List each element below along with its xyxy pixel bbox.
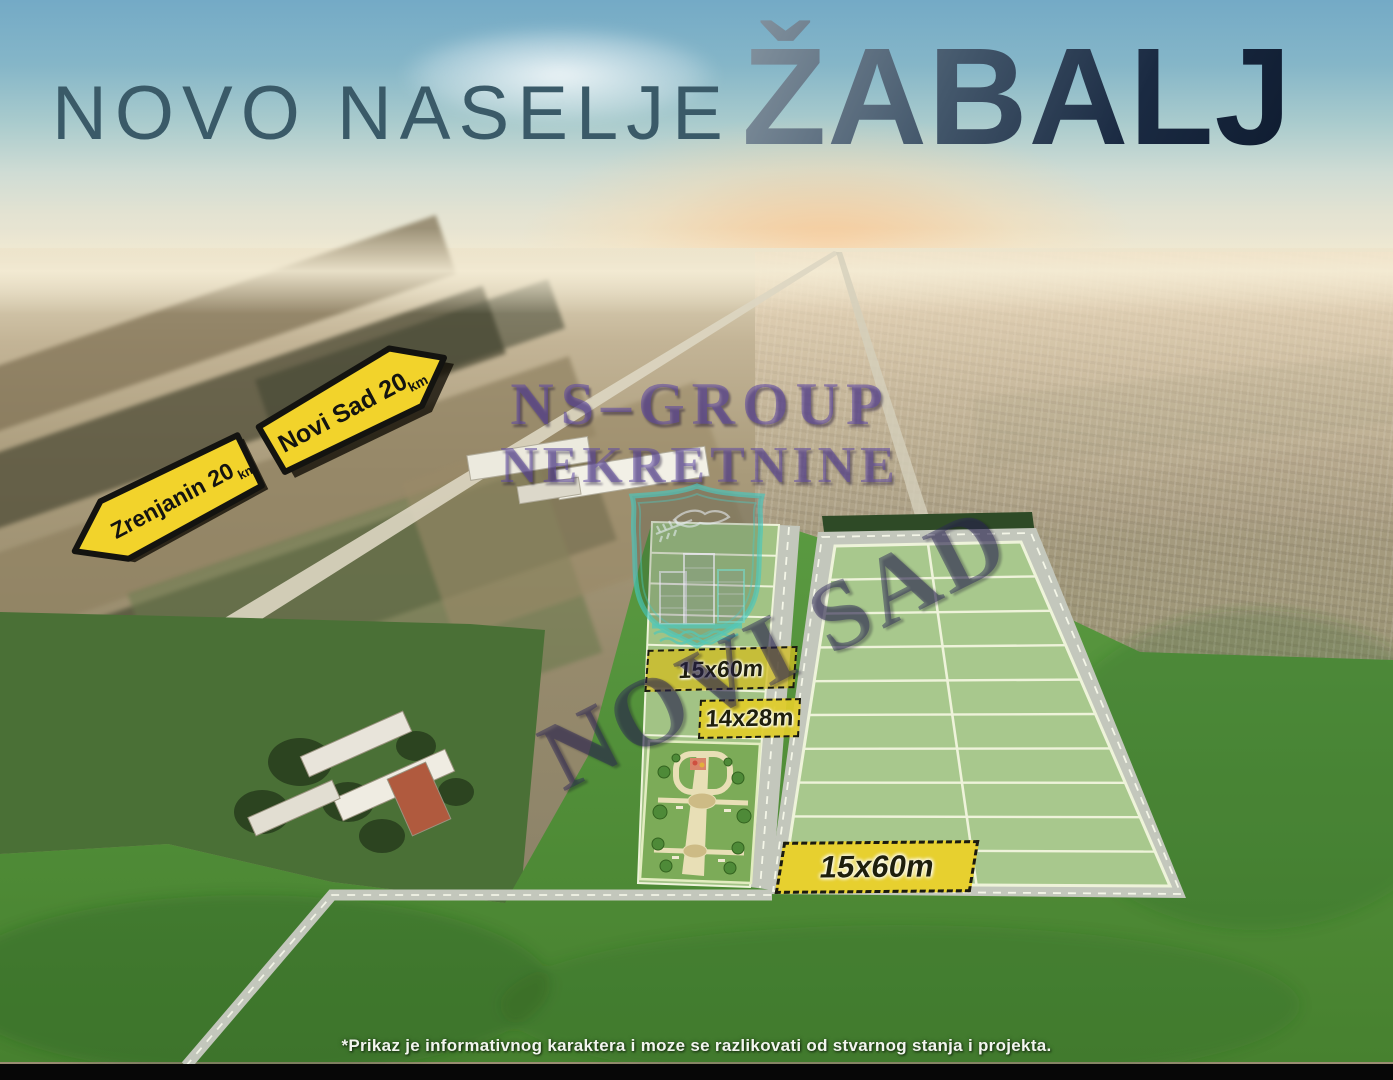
- plot-size-label-grid: 15x60m: [775, 840, 980, 894]
- disclaimer-text: *Prikaz je informativnog karaktera i moz…: [0, 1036, 1393, 1056]
- promo-poster: 15x60m 14x28m 15x60m Novi Sad 20 km Zren…: [0, 0, 1393, 1080]
- page-title-city: ŽABALJ: [742, 18, 1292, 177]
- park-plaza: [683, 844, 707, 858]
- plot-size-text: 15x60m: [817, 848, 937, 885]
- bottom-black-bar: [0, 1064, 1393, 1080]
- page-title-prefix: NOVO NASELJE: [52, 70, 731, 157]
- watermark-line1: NS–GROUP: [500, 370, 900, 439]
